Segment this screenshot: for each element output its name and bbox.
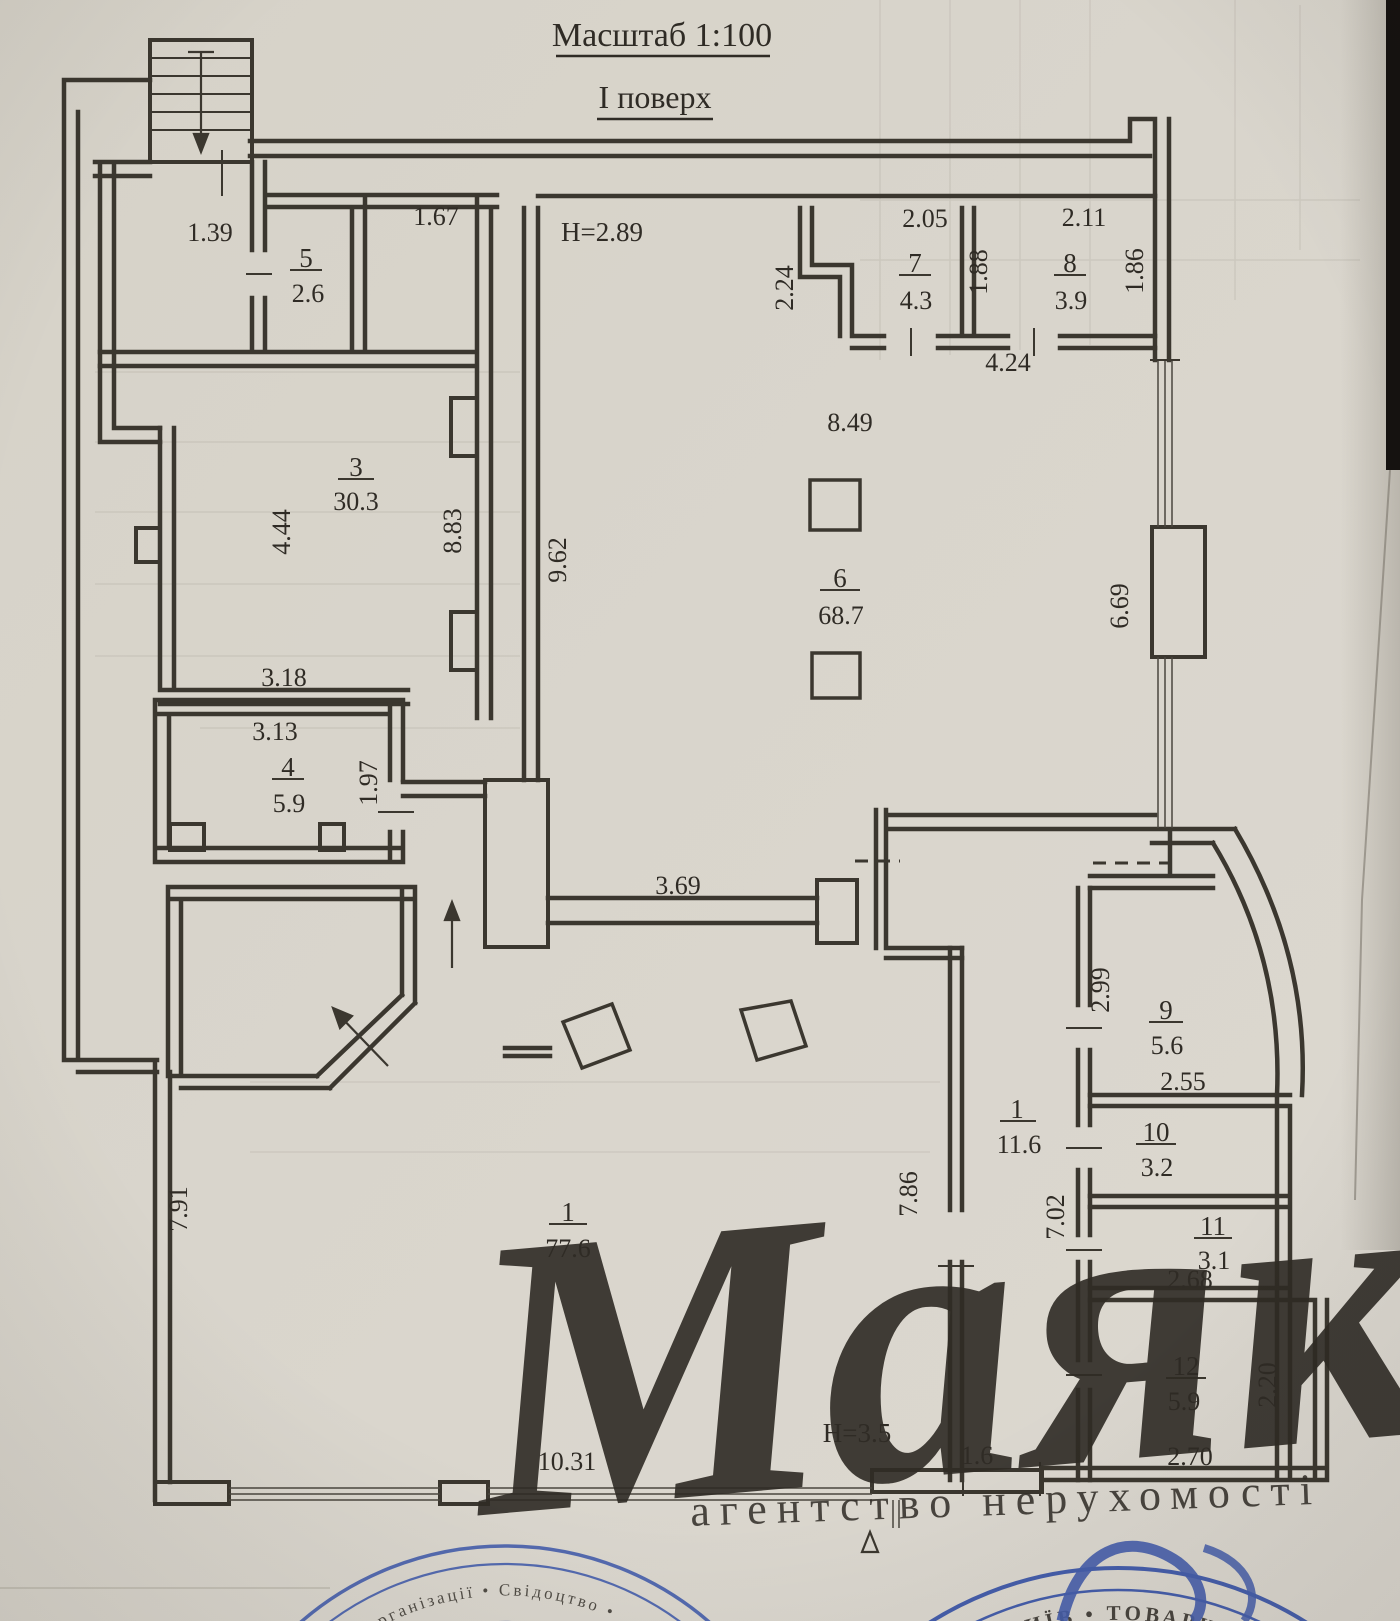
scanned-floor-plan-page: Масштаб 1:100 І поверх Н=2.89 Н=3.5 5 2.… — [0, 0, 1400, 1621]
vignette-overlay — [0, 0, 1400, 1621]
floor-plan-svg: Масштаб 1:100 І поверх Н=2.89 Н=3.5 5 2.… — [0, 0, 1400, 1621]
